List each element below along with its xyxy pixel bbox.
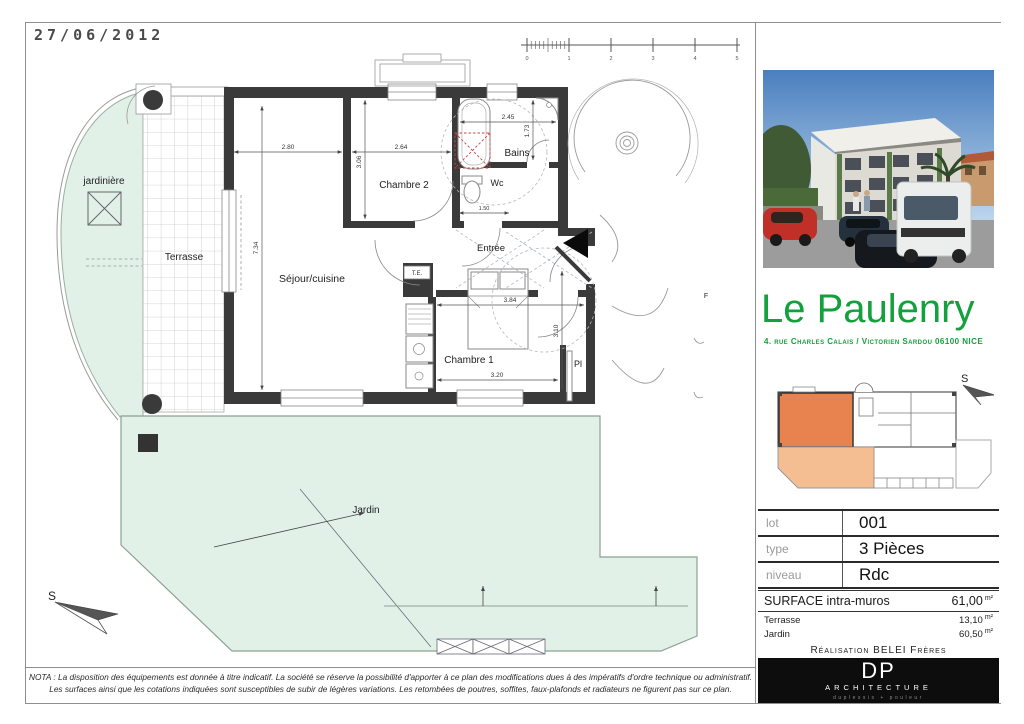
lot-label: lot xyxy=(758,511,843,535)
table-row-type: type 3 Pièces xyxy=(758,537,999,563)
label-f: F xyxy=(704,293,708,300)
logo-name: ARCHITECTURE xyxy=(825,683,932,692)
surface-table: SURFACE intra-muros 61,00m² Terrasse 13,… xyxy=(758,590,999,658)
logo-tagline: duplessis + pouleur xyxy=(833,695,924,701)
surface-jardin-label: Jardin xyxy=(764,629,790,640)
surface-main-unit: m² xyxy=(985,595,993,602)
nota-disclaimer: NOTA : La disposition des équipements es… xyxy=(26,667,755,695)
project-address: 4. rue Charles Calais / Victorien Sardou… xyxy=(764,337,999,346)
closet-rod xyxy=(567,351,572,401)
surface-terrasse-label: Terrasse xyxy=(764,615,800,626)
dim-chambre2-height: 3.06 xyxy=(356,155,363,168)
photo-hedge xyxy=(763,188,818,208)
garden-fence xyxy=(437,639,545,654)
jardiniere-area xyxy=(61,91,150,417)
dim-sejour-width: 2.80 xyxy=(282,144,295,151)
keyplan-terraces xyxy=(874,478,953,488)
unit-info-table: lot 001 type 3 Pièces niveau Rdc xyxy=(758,509,999,589)
scale-2: 2 xyxy=(609,56,612,62)
table-row-lot: lot 001 xyxy=(758,511,999,537)
garden-area xyxy=(121,416,697,651)
keyplan-unit-highlight xyxy=(779,393,853,447)
corner-sink xyxy=(536,98,558,120)
keyplan-right-wing xyxy=(956,440,991,488)
site-key-plan: S xyxy=(763,368,994,508)
label-bains: Bains xyxy=(504,148,529,159)
toilet-bowl xyxy=(464,181,480,203)
scale-1: 1 xyxy=(567,56,570,62)
plan-sheet: 27/06/2012 xyxy=(0,0,1024,724)
dim-bains-height: 1.73 xyxy=(524,124,531,137)
lot-value: 001 xyxy=(843,513,887,533)
label-wc: Wc xyxy=(491,178,504,188)
surface-jardin-value: 60,50 xyxy=(959,629,983,640)
pillow xyxy=(500,272,525,289)
dim-bains-width: 2.45 xyxy=(502,114,515,121)
keyplan-compass-arrow-icon xyxy=(963,385,994,397)
surface-main-row: SURFACE intra-muros 61,00m² xyxy=(758,590,999,612)
logo-initials: DP xyxy=(861,660,896,682)
architect-logo: DP ARCHITECTURE duplessis + pouleur xyxy=(758,658,999,703)
scale-tick-labels: 0 1 2 3 4 5 xyxy=(525,56,738,62)
column-bottom xyxy=(142,394,162,414)
surface-jardin-unit: m² xyxy=(985,628,993,635)
sheet-frame: 27/06/2012 xyxy=(25,22,1001,704)
label-chambre1: Chambre 1 xyxy=(444,355,494,366)
dim-sejour-height: 7.34 xyxy=(253,241,260,254)
keyplan-south-label: S xyxy=(961,373,968,385)
surface-terrasse-row: Terrasse 13,10m² xyxy=(758,612,999,626)
dim-chambre2-width: 2.64 xyxy=(395,144,408,151)
building-photo-drawing xyxy=(763,70,994,268)
scale-bar: 0 1 2 3 4 5 xyxy=(521,38,740,62)
dim-chambre1-height: 3.10 xyxy=(553,324,560,337)
label-jardiniere: jardinière xyxy=(82,176,125,187)
scale-0: 0 xyxy=(525,56,528,62)
compass-south-label: S xyxy=(48,589,56,603)
dim-wc-width: 1.50 xyxy=(479,206,490,212)
dim-chambre1-width: 3.84 xyxy=(504,297,517,304)
label-chambre2: Chambre 2 xyxy=(379,180,429,191)
south-compass: S xyxy=(48,589,118,634)
label-placard: Pl xyxy=(574,359,582,369)
label-terrasse: Terrasse xyxy=(165,252,204,263)
table-row-niveau: niveau Rdc xyxy=(758,563,999,589)
niveau-value: Rdc xyxy=(843,565,889,585)
surface-jardin-row: Jardin 60,50m² xyxy=(758,626,999,640)
nota-line-1: NOTA : La disposition des équipements es… xyxy=(26,672,755,684)
realisation-credit: Réalisation BELEI Frères xyxy=(758,640,999,658)
photo-white-van xyxy=(897,182,971,263)
label-entree: Entrée xyxy=(477,243,505,254)
te-label: T.E. xyxy=(412,271,423,277)
nota-line-2: Les surfaces ainsi que les cotations ind… xyxy=(26,684,755,696)
type-label: type xyxy=(758,537,843,561)
garden-gate xyxy=(138,434,158,452)
surface-terrasse-unit: m² xyxy=(985,614,993,621)
surface-main-value: 61,00 xyxy=(952,594,983,608)
floor-plan-drawing: 0 1 2 3 4 5 xyxy=(26,23,756,703)
type-value: 3 Pièces xyxy=(843,539,924,559)
scale-5: 5 xyxy=(735,56,738,62)
label-sejour-cuisine: Séjour/cuisine xyxy=(279,273,345,285)
scale-3: 3 xyxy=(651,56,654,62)
dim-chambre1-width-bottom: 3.20 xyxy=(491,372,504,379)
building-photo xyxy=(763,70,994,268)
surface-main-label: SURFACE intra-muros xyxy=(764,594,890,608)
info-panel: Le Paulenry 4. rue Charles Calais / Vict… xyxy=(755,23,1001,703)
keyplan-garden-highlight xyxy=(778,447,874,488)
niveau-label: niveau xyxy=(758,563,843,587)
column-top xyxy=(143,90,163,110)
surface-terrasse-value: 13,10 xyxy=(959,615,983,626)
project-title: Le Paulenry xyxy=(761,287,999,332)
scale-4: 4 xyxy=(693,56,696,62)
